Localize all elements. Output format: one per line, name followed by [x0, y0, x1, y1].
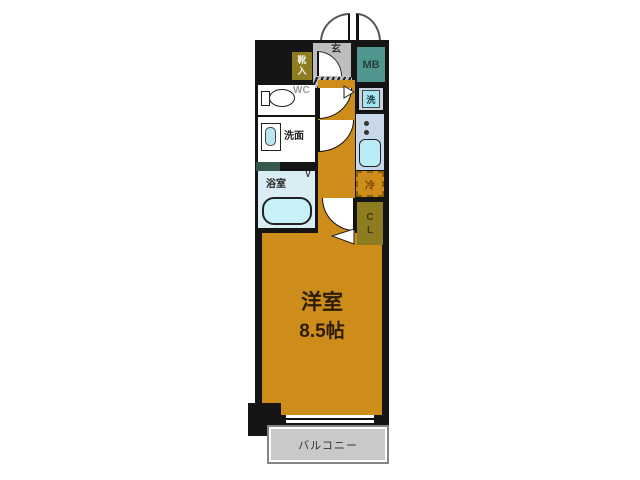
entrance-label: 玄 [331, 45, 341, 56]
washroom-label: 洗面 [284, 132, 304, 143]
window [286, 415, 374, 423]
closet: C L [357, 202, 383, 245]
washer-pan: 洗 [357, 86, 385, 112]
main-room-size: 8.5帖 [262, 316, 382, 343]
washroom: 洗面 [258, 117, 315, 162]
main-room-name: 洋室 [262, 286, 382, 316]
shoe-cabinet: 靴 入 [292, 52, 312, 80]
bathtub-icon [262, 197, 312, 225]
window-mullion [286, 418, 374, 420]
washer-icon: 洗 [362, 90, 380, 108]
toilet-label: WC [293, 86, 310, 97]
refrigerator-label: 冷 [365, 177, 375, 192]
stove-burner-icon [364, 121, 369, 126]
balcony-label: バルコニー [298, 437, 358, 453]
meter-box-label: MB [362, 59, 379, 71]
kitchen-sink-icon [359, 139, 381, 167]
refrigerator-space: 冷 [356, 171, 384, 197]
closet-label: C [366, 211, 373, 224]
main-room-label: 洋室 8.5帖 [262, 286, 382, 343]
shoe-cabinet-label: 靴 [297, 55, 306, 66]
stove-burner-icon [364, 130, 369, 135]
washer-label: 洗 [366, 93, 375, 106]
bathroom-label: 浴室 [266, 180, 286, 191]
kitchen-counter [356, 114, 384, 170]
meterbox-door-swing-arc [356, 13, 381, 42]
toilet-room: WC [258, 85, 315, 115]
toilet-bowl-icon [269, 89, 295, 107]
meter-box: MB [357, 47, 385, 82]
entrance-door-swing-arc [320, 13, 350, 42]
door-swing-triangle-large [331, 228, 355, 245]
closet-label: L [366, 224, 373, 237]
shoe-cabinet-label: 入 [297, 66, 306, 77]
balcony: バルコニー [267, 425, 389, 464]
bathroom-door-mark: ∨ [304, 169, 312, 181]
pipe-space [256, 162, 280, 171]
bathroom: 浴室 ∨ [258, 171, 315, 228]
door-swing-triangle-small [343, 85, 355, 99]
floorplan-canvas: 靴 入 玄 MB WC 洗面 浴室 ∨ [0, 0, 640, 480]
washbasin-icon [261, 123, 281, 151]
washbasin-bowl-icon [265, 127, 276, 146]
